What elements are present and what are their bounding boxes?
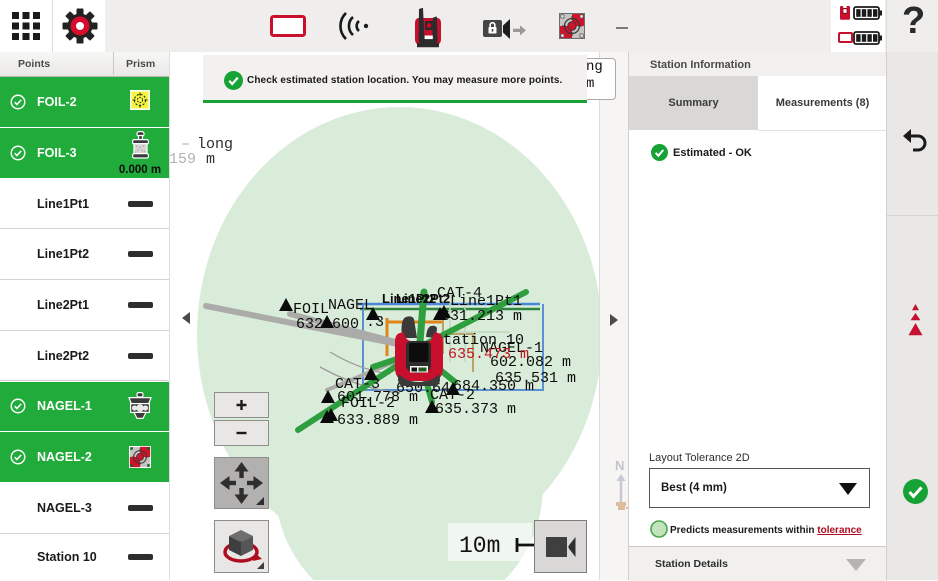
svg-text:NAGEL: NAGEL	[328, 297, 373, 314]
svg-text:.3: .3	[366, 314, 384, 331]
svg-text:631.213 m: 631.213 m	[441, 308, 522, 325]
svg-text:635.473 m: 635.473 m	[448, 346, 529, 363]
svg-text:635.373 m: 635.373 m	[435, 401, 516, 418]
svg-text:FOIL-2: FOIL-2	[341, 395, 395, 412]
svg-text:N: N	[615, 458, 624, 473]
svg-text:633.889 m: 633.889 m	[337, 412, 418, 429]
svg-text:Line2Pt2: Line2Pt2	[396, 291, 450, 306]
svg-text:632.600: 632.600	[296, 316, 359, 333]
